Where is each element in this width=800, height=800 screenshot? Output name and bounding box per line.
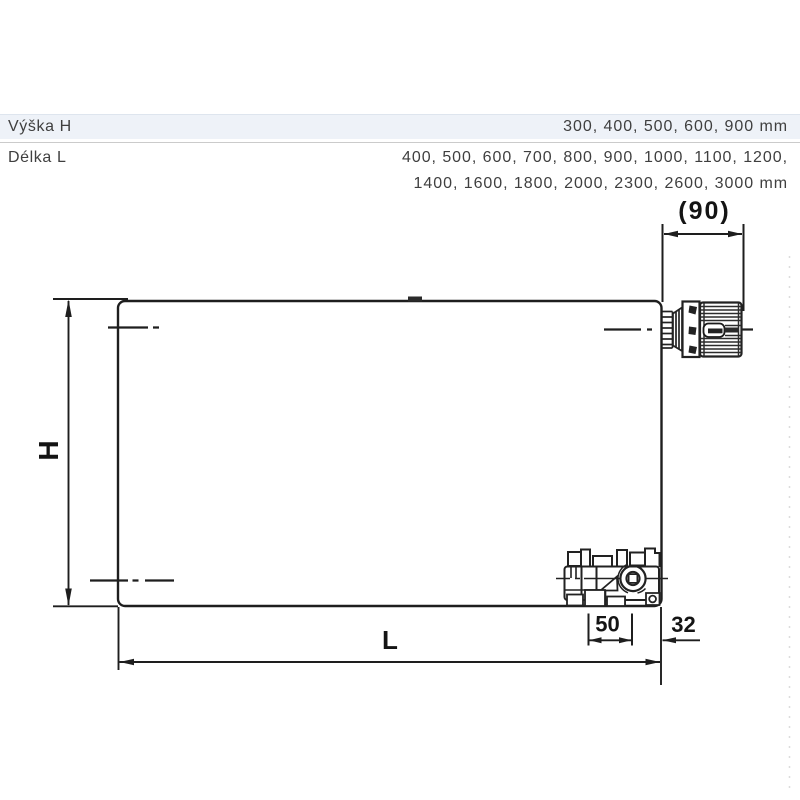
svg-text:H: H [33,440,64,460]
svg-text:50: 50 [595,612,619,637]
svg-text:(90): (90) [678,197,730,225]
svg-text:32: 32 [671,612,695,637]
svg-text:L: L [382,625,398,655]
